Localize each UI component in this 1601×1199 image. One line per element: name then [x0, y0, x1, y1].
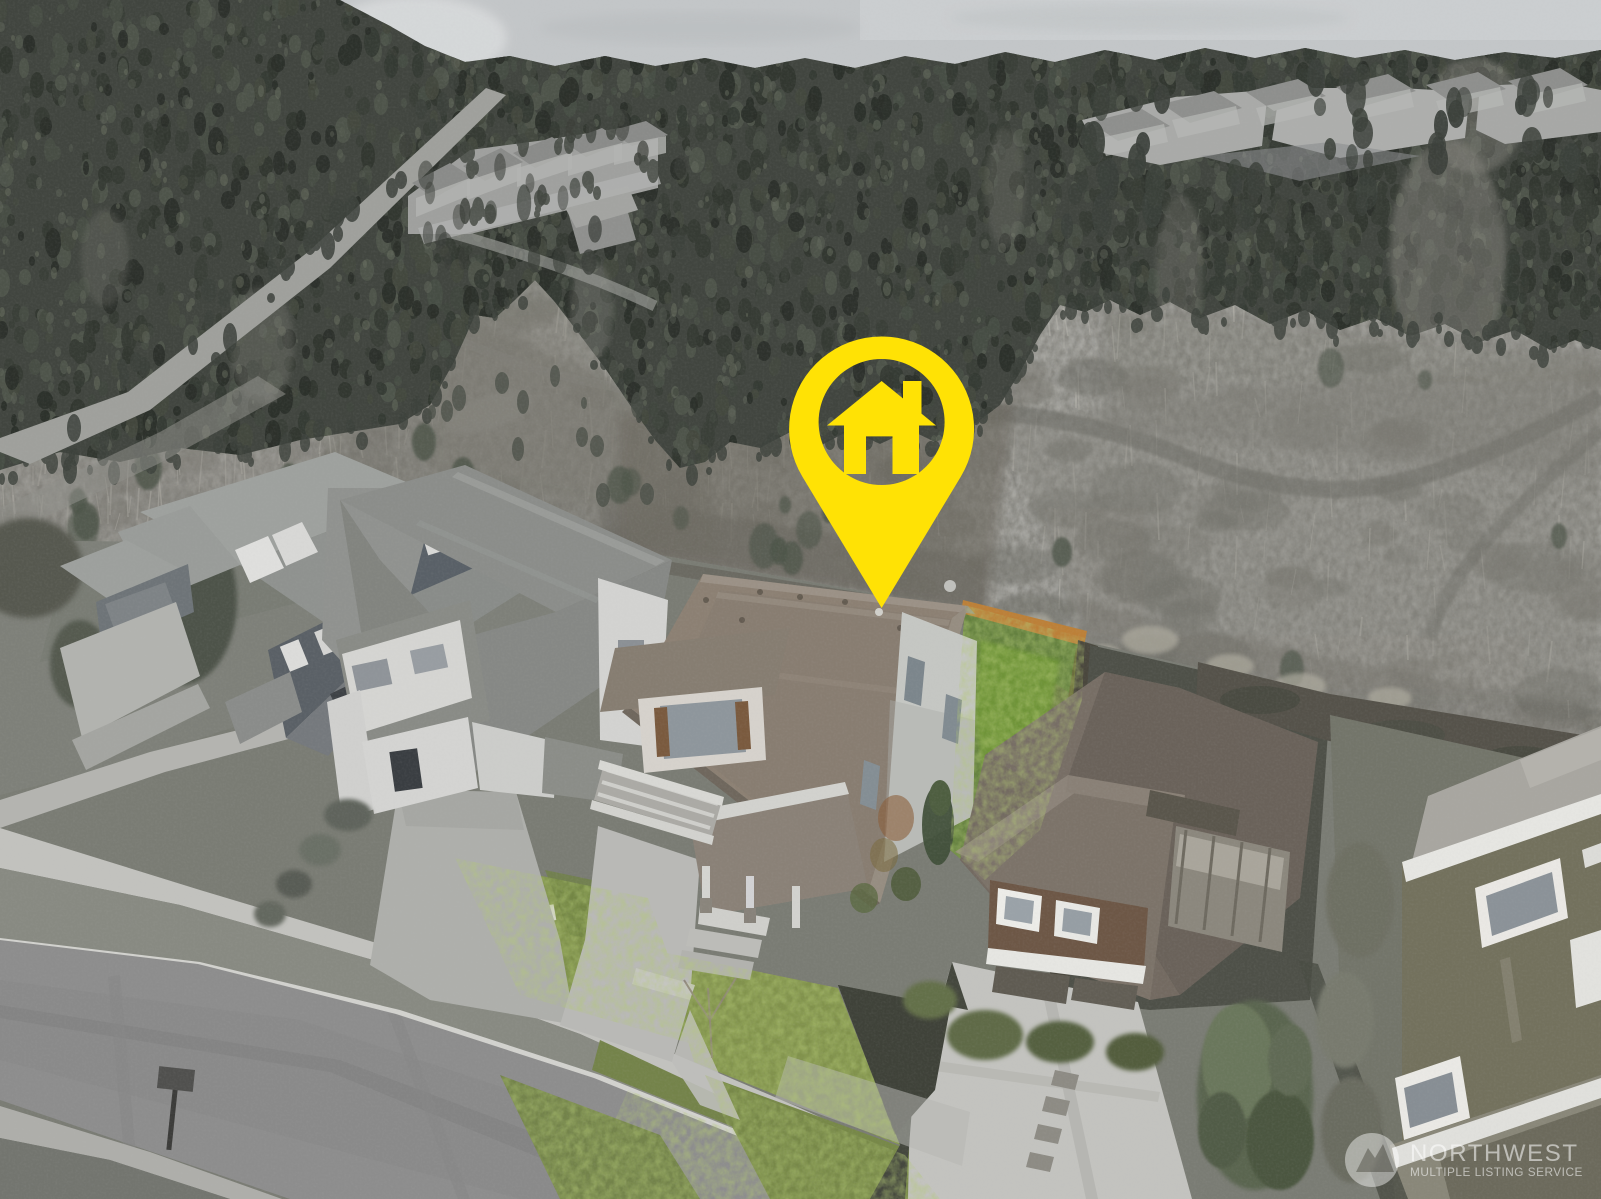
svg-text:MULTIPLE LISTING SERVICE: MULTIPLE LISTING SERVICE	[1410, 1165, 1583, 1179]
svg-text:NORTHWEST: NORTHWEST	[1410, 1140, 1579, 1167]
